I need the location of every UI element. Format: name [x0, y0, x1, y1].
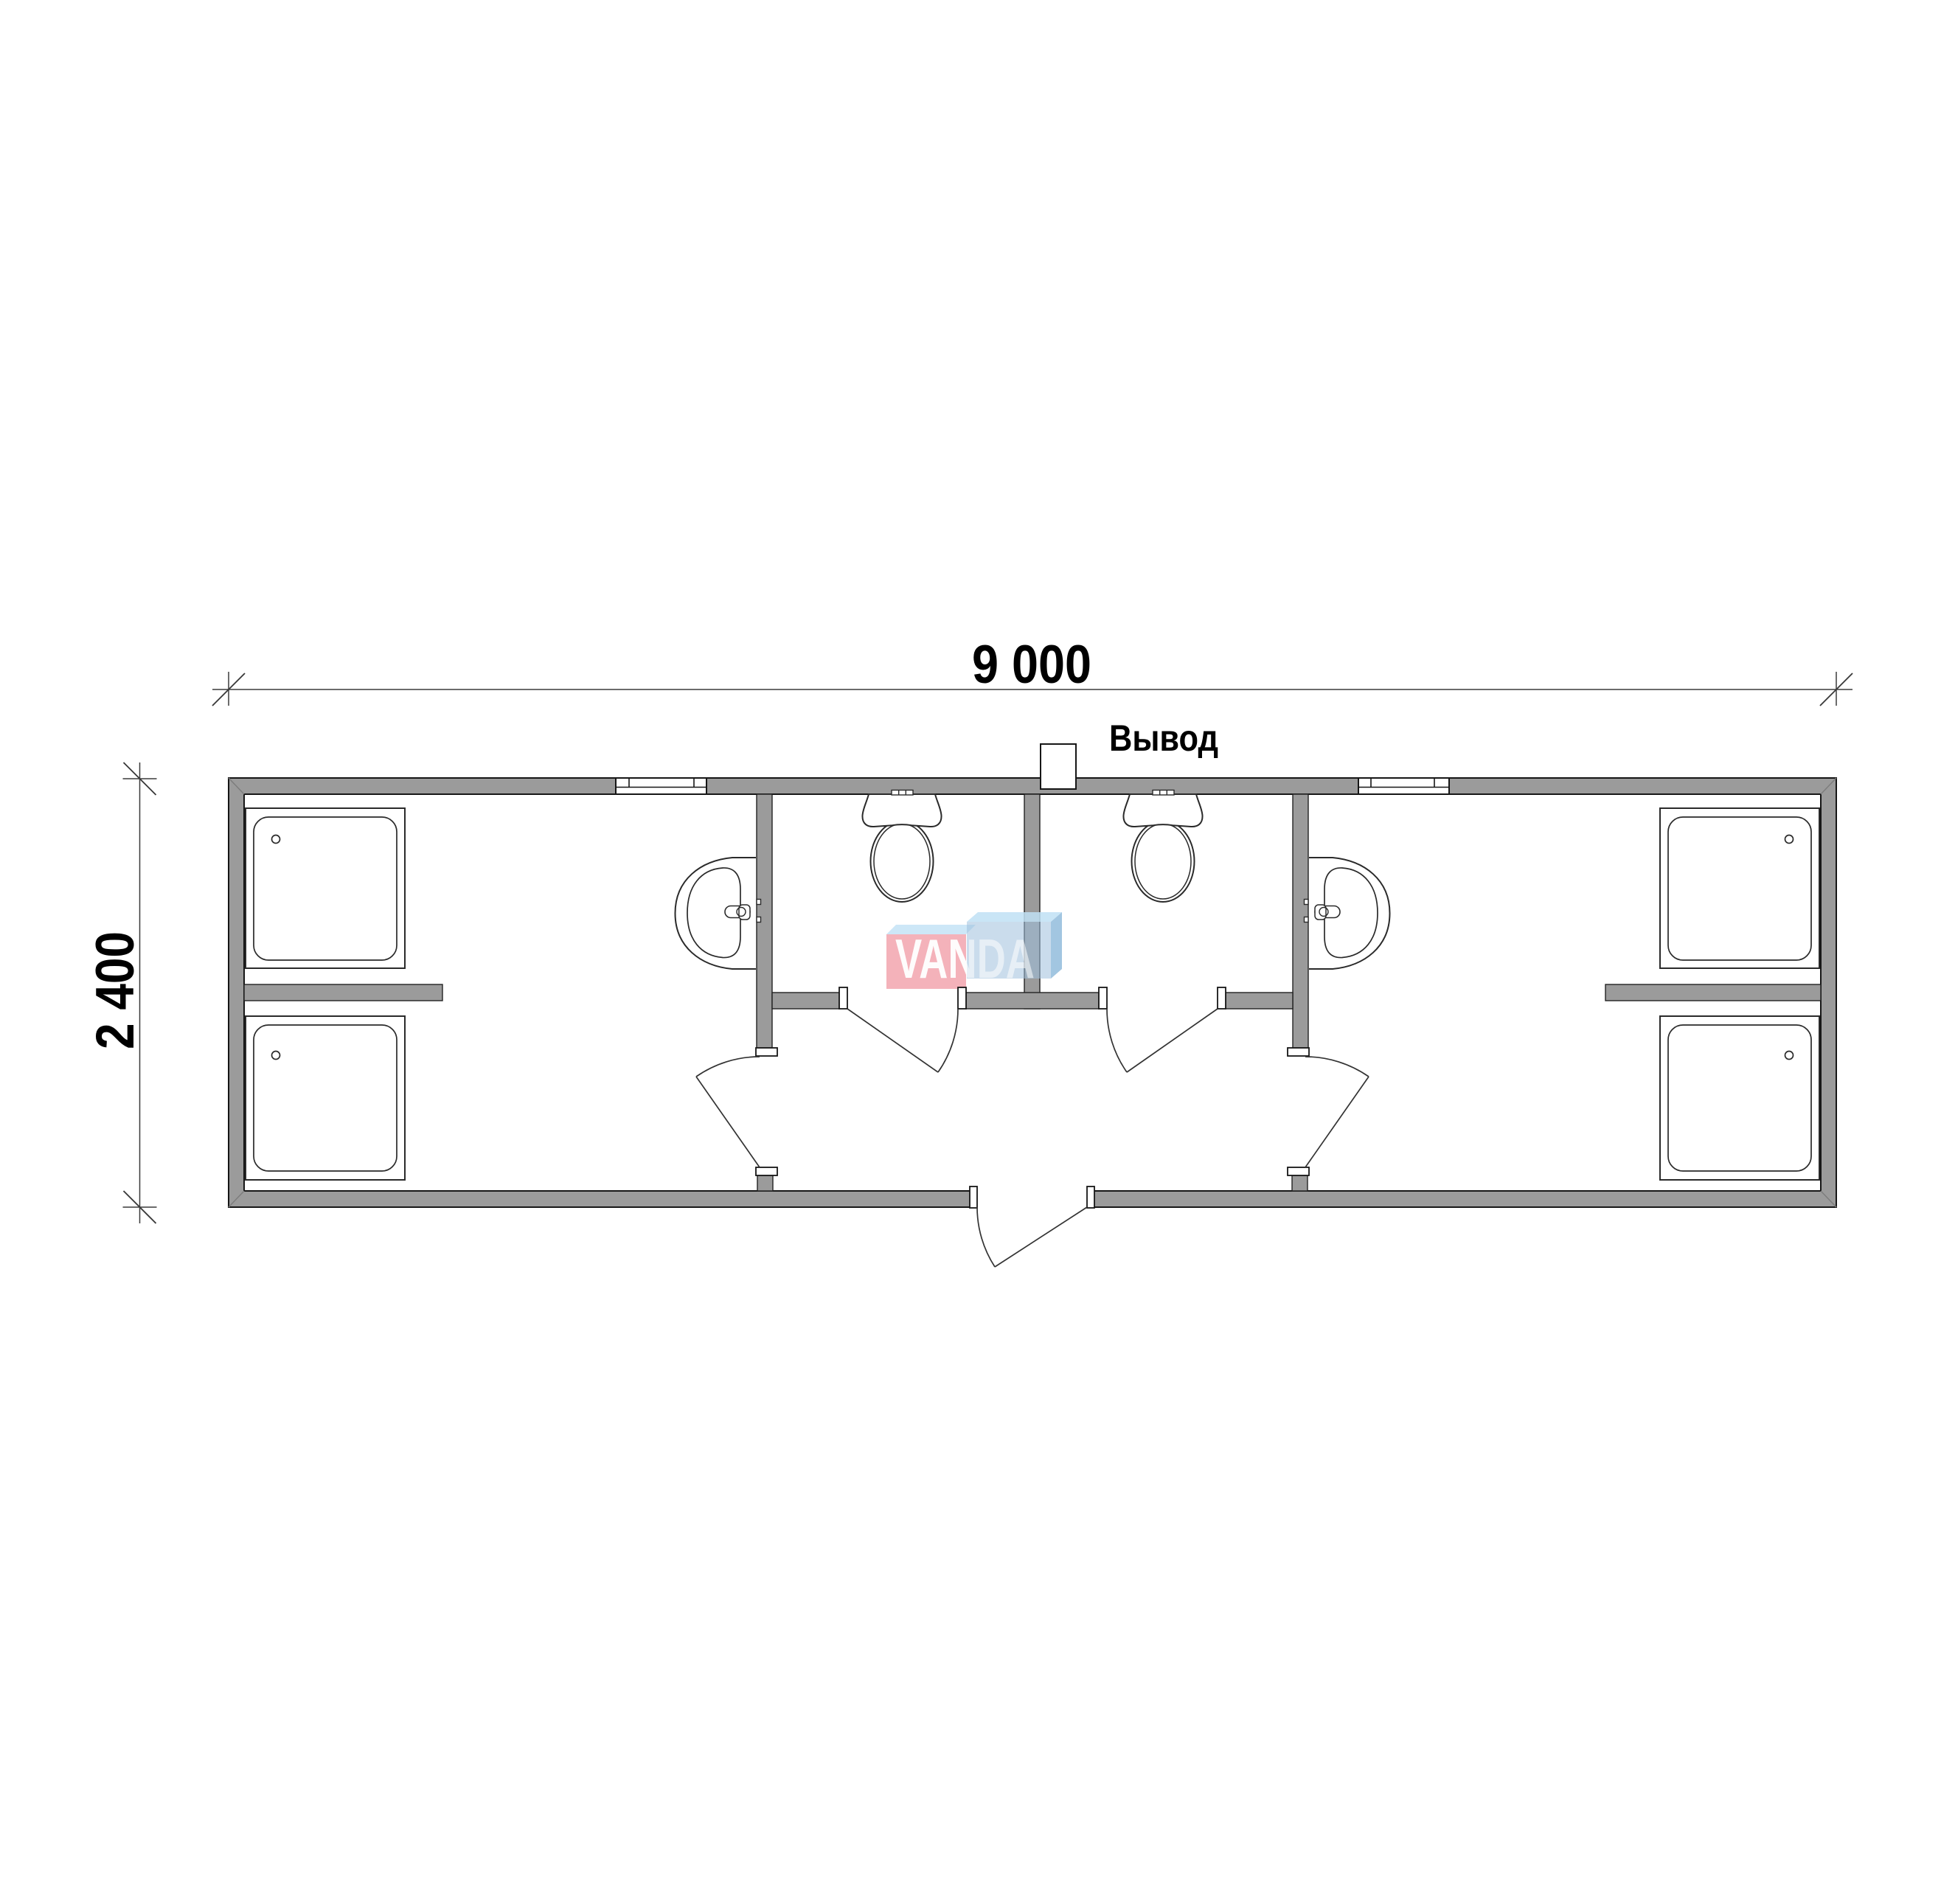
- svg-text:2 400: 2 400: [86, 931, 145, 1049]
- svg-text:Вывод: Вывод: [1109, 718, 1218, 759]
- svg-text:9 000: 9 000: [972, 635, 1091, 695]
